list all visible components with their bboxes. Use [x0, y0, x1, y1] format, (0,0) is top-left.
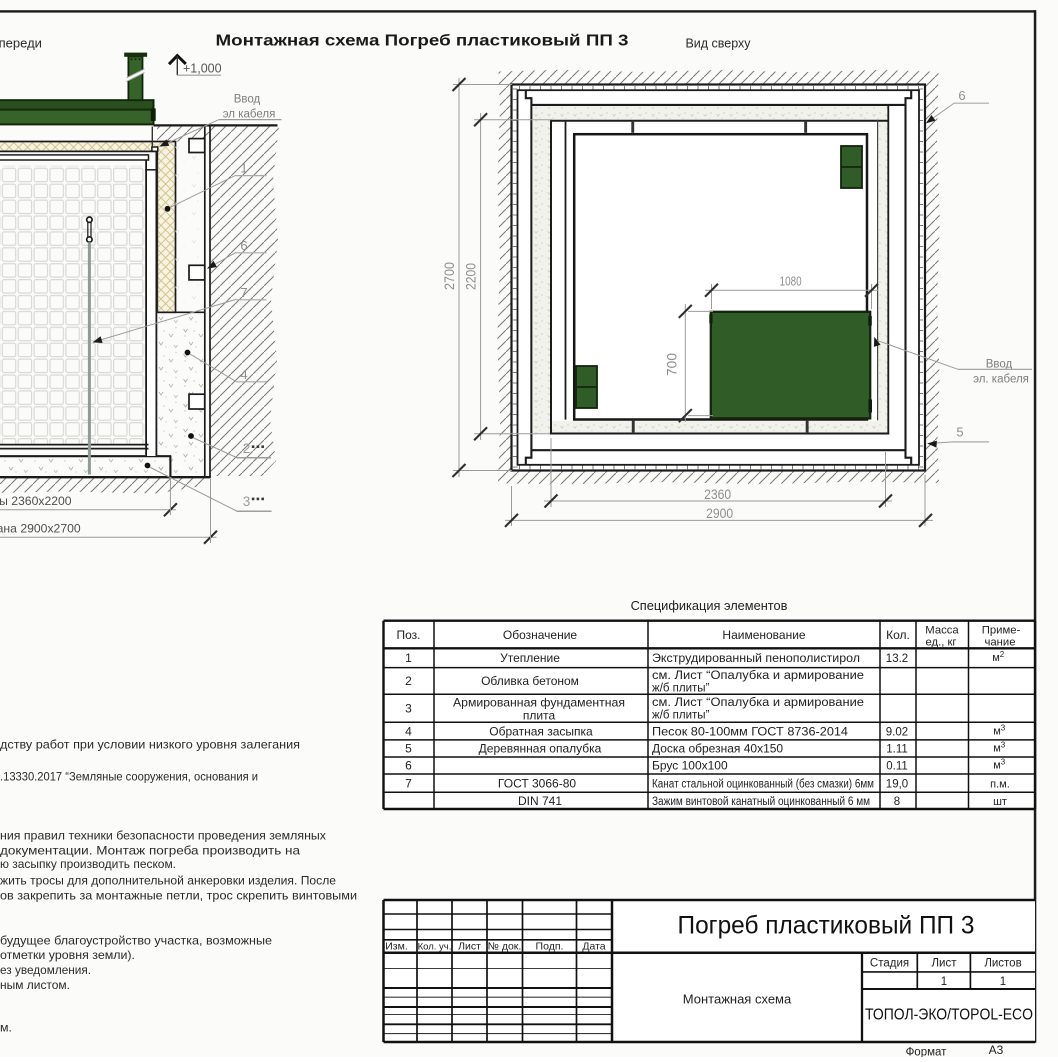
svg-text:Формат: Формат — [906, 1047, 948, 1058]
svg-text:Обливка бетоном: Обливка бетоном — [481, 674, 579, 688]
svg-text:м: м — [993, 743, 1001, 755]
svg-text:Обозначение: Обозначение — [503, 628, 578, 642]
svg-text:ным листом.: ным листом. — [0, 978, 70, 992]
svg-text:3: 3 — [1001, 758, 1006, 767]
svg-text:13.2: 13.2 — [886, 653, 908, 665]
svg-text:отметки уровня земли).: отметки уровня земли). — [0, 948, 135, 962]
svg-text:Экструдированный пенополистиро: Экструдированный пенополистирол — [652, 651, 860, 665]
svg-text:ТОПОЛ-ЭКО/TOPOL-ECO: ТОПОЛ-ЭКО/TOPOL-ECO — [865, 1007, 1033, 1024]
svg-text:№ док.: № док. — [488, 941, 522, 953]
svg-text:Армированная фундаментная: Армированная фундаментная — [453, 695, 625, 709]
svg-text:Монтажная схема Погреб пластик: Монтажная схема Погреб пластиковый ПП 3 — [216, 33, 629, 50]
svg-text:п.м.: п.м. — [990, 778, 1010, 790]
svg-text:3: 3 — [243, 494, 251, 509]
svg-text:2900: 2900 — [706, 505, 733, 521]
svg-text:шт: шт — [993, 796, 1007, 808]
svg-text:Ввод: Ввод — [986, 359, 1013, 371]
svg-text:3: 3 — [405, 701, 412, 715]
svg-text:ед., кг: ед., кг — [925, 637, 956, 649]
svg-text:6: 6 — [958, 88, 965, 103]
svg-text:6: 6 — [240, 238, 247, 253]
svg-text:Спецификация элементов: Спецификация элементов — [631, 598, 788, 613]
svg-text:Вид сверху: Вид сверху — [685, 37, 751, 51]
svg-text:Масса: Масса — [925, 625, 959, 637]
svg-text:Зажим винтовой канатный оцинко: Зажим винтовой канатный оцинкованный 6 м… — [652, 796, 870, 808]
svg-text:1: 1 — [240, 161, 247, 176]
svg-text:ж/б плиты”: ж/б плиты” — [652, 683, 710, 695]
svg-text:эл кабеля: эл кабеля — [223, 108, 276, 120]
svg-text:ез уведомления.: ез уведомления. — [0, 963, 91, 977]
svg-text:Стадия: Стадия — [870, 958, 909, 970]
svg-text:Листов: Листов — [984, 958, 1021, 970]
svg-text:Обратная засыпка: Обратная засыпка — [489, 724, 593, 738]
svg-text:Погреб пластиковый ПП 3: Погреб пластиковый ПП 3 — [678, 912, 975, 940]
svg-text:Канат стальной оцинкованный (б: Канат стальной оцинкованный (без смазки)… — [652, 778, 874, 790]
svg-text:Кол.: Кол. — [886, 628, 910, 642]
svg-text:7: 7 — [240, 285, 247, 300]
svg-text:дству работ при условии низког: дству работ при условии низкого уровня з… — [0, 738, 300, 752]
svg-text:Лист: Лист — [458, 941, 481, 953]
svg-text:1080: 1080 — [780, 274, 802, 289]
svg-text:Лист: Лист — [932, 958, 958, 970]
svg-text:А3: А3 — [989, 1043, 1004, 1057]
svg-text:м: м — [992, 652, 1000, 664]
svg-text:м: м — [993, 725, 1001, 737]
svg-text:Брус 100х100: Брус 100х100 — [652, 759, 728, 773]
svg-text:1.11: 1.11 — [886, 744, 908, 756]
svg-text:см. Лист “Опалубка и армирован: см. Лист “Опалубка и армирование — [652, 697, 864, 709]
svg-text:7: 7 — [405, 776, 412, 790]
svg-text:5: 5 — [956, 425, 963, 440]
svg-text:ГОСТ 3066-80: ГОСТ 3066-80 — [498, 776, 576, 790]
svg-text:см. Лист “Опалубка и армирован: см. Лист “Опалубка и армирование — [652, 670, 864, 682]
svg-text:1: 1 — [941, 976, 947, 988]
svg-text:2: 2 — [1000, 650, 1005, 659]
svg-text:3: 3 — [1001, 723, 1006, 732]
svg-text:эл. кабеля: эл. кабеля — [973, 373, 1029, 385]
svg-text:документации. Монтаж погреба п: документации. Монтаж погреба производить… — [0, 844, 300, 858]
svg-text:будущее благоустройство участк: будущее благоустройство участка, возможн… — [0, 933, 272, 947]
svg-text:3: 3 — [1001, 741, 1006, 750]
svg-text:плита: плита — [523, 708, 556, 722]
svg-text:2200: 2200 — [462, 263, 478, 290]
svg-text:ния правил техники безопасност: ния правил техники безопасности проведен… — [0, 829, 326, 843]
svg-text:Монтажная схема: Монтажная схема — [683, 992, 792, 1007]
svg-text:1: 1 — [1000, 976, 1006, 988]
svg-text:Приме-: Приме- — [982, 625, 1021, 637]
svg-text:+1,000: +1,000 — [183, 61, 222, 75]
svg-text:чание: чание — [984, 637, 1015, 649]
svg-text:Деревянная опалубка: Деревянная опалубка — [479, 742, 602, 756]
svg-text:ов закрепить за монтажные петл: ов закрепить за монтажные петли, трос ск… — [0, 889, 357, 903]
svg-text:плиты 2360х2200: плиты 2360х2200 — [0, 494, 72, 508]
svg-text:м.: м. — [0, 1021, 12, 1035]
svg-text:4: 4 — [405, 724, 412, 738]
svg-text:700: 700 — [664, 353, 680, 376]
svg-text:Кол. уч.: Кол. уч. — [418, 942, 452, 953]
svg-text:Дата: Дата — [582, 941, 605, 953]
svg-text:5: 5 — [405, 742, 412, 756]
svg-text:2360: 2360 — [704, 486, 731, 502]
svg-text:Поз.: Поз. — [397, 628, 421, 642]
svg-text:6: 6 — [405, 759, 412, 773]
svg-text:19,0: 19,0 — [886, 778, 908, 790]
svg-text:Подп.: Подп. — [536, 941, 564, 953]
svg-text:Песок 80-100мм ГОСТ 8736-2014: Песок 80-100мм ГОСТ 8736-2014 — [652, 724, 848, 738]
svg-text:ю засыпку производить песком.: ю засыпку производить песком. — [0, 857, 176, 871]
svg-text:Изм.: Изм. — [385, 941, 408, 953]
svg-text:DIN 741: DIN 741 — [518, 794, 562, 808]
svg-text:ж/б плиты”: ж/б плиты” — [652, 709, 710, 721]
svg-text:2700: 2700 — [441, 262, 457, 290]
svg-text:4: 4 — [240, 367, 247, 382]
svg-text:0.11: 0.11 — [886, 761, 908, 773]
svg-text:жить тросы для дополнительной: жить тросы для дополнительной анкеровки … — [0, 874, 336, 888]
svg-text:м: м — [993, 760, 1001, 772]
svg-text:Утепление: Утепление — [500, 651, 560, 665]
svg-text:2: 2 — [243, 441, 251, 456]
svg-text:8: 8 — [894, 796, 900, 808]
svg-text:1: 1 — [405, 651, 412, 665]
svg-text:Доска обрезная 40х150: Доска обрезная 40х150 — [652, 742, 783, 756]
svg-text:Вид спереди: Вид спереди — [0, 36, 42, 51]
svg-text:Наименование: Наименование — [722, 628, 806, 642]
svg-text:котлована 2900х2700: котлована 2900х2700 — [0, 522, 81, 536]
svg-text:2: 2 — [405, 674, 412, 688]
svg-text:Ввод: Ввод — [234, 93, 261, 105]
svg-text:.13330.2017 “Земляные сооружен: .13330.2017 “Земляные сооружения, основа… — [0, 770, 258, 784]
svg-text:9.02: 9.02 — [886, 726, 908, 738]
